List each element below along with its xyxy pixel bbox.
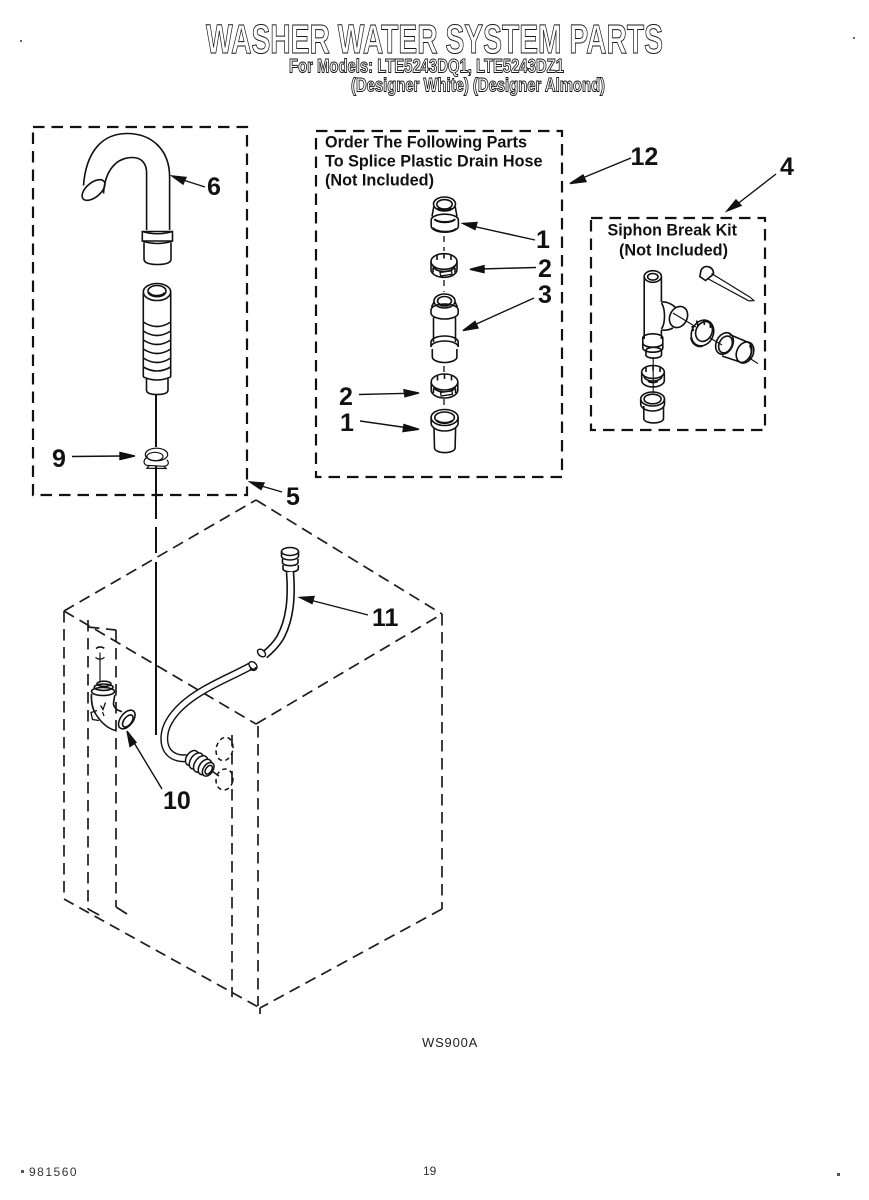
svg-text:11: 11 xyxy=(372,604,399,632)
svg-text:WASHER WATER SYSTEM PARTS: WASHER WATER SYSTEM PARTS xyxy=(206,16,663,62)
svg-text:5: 5 xyxy=(286,483,300,511)
svg-text:To Splice Plastic Drain Hose: To Splice Plastic Drain Hose xyxy=(325,153,543,171)
svg-text:1: 1 xyxy=(536,226,550,254)
svg-text:(Not Included): (Not Included) xyxy=(619,242,728,260)
svg-text:1: 1 xyxy=(340,409,354,437)
svg-text:981560: 981560 xyxy=(29,1165,78,1179)
svg-text:6: 6 xyxy=(207,173,221,201)
svg-text:(Not Included): (Not Included) xyxy=(325,172,434,190)
svg-text:10: 10 xyxy=(163,787,191,815)
svg-text:3: 3 xyxy=(538,281,552,309)
svg-text:Order The Following Parts: Order The Following Parts xyxy=(325,134,527,152)
svg-text:4: 4 xyxy=(780,153,794,181)
svg-text:12: 12 xyxy=(631,143,659,171)
svg-text:(Designer White) (Designer Alm: (Designer White) (Designer Almond) xyxy=(351,76,605,97)
svg-text:2: 2 xyxy=(538,255,552,283)
svg-text:9: 9 xyxy=(52,445,66,473)
svg-text:WS900A: WS900A xyxy=(422,1035,478,1050)
svg-text:2: 2 xyxy=(339,383,353,411)
svg-text:For Models: LTE5243DQ1, LTE524: For Models: LTE5243DQ1, LTE5243DZ1 xyxy=(289,57,564,78)
svg-text:Siphon Break Kit: Siphon Break Kit xyxy=(608,222,738,240)
svg-text:19: 19 xyxy=(423,1164,437,1178)
